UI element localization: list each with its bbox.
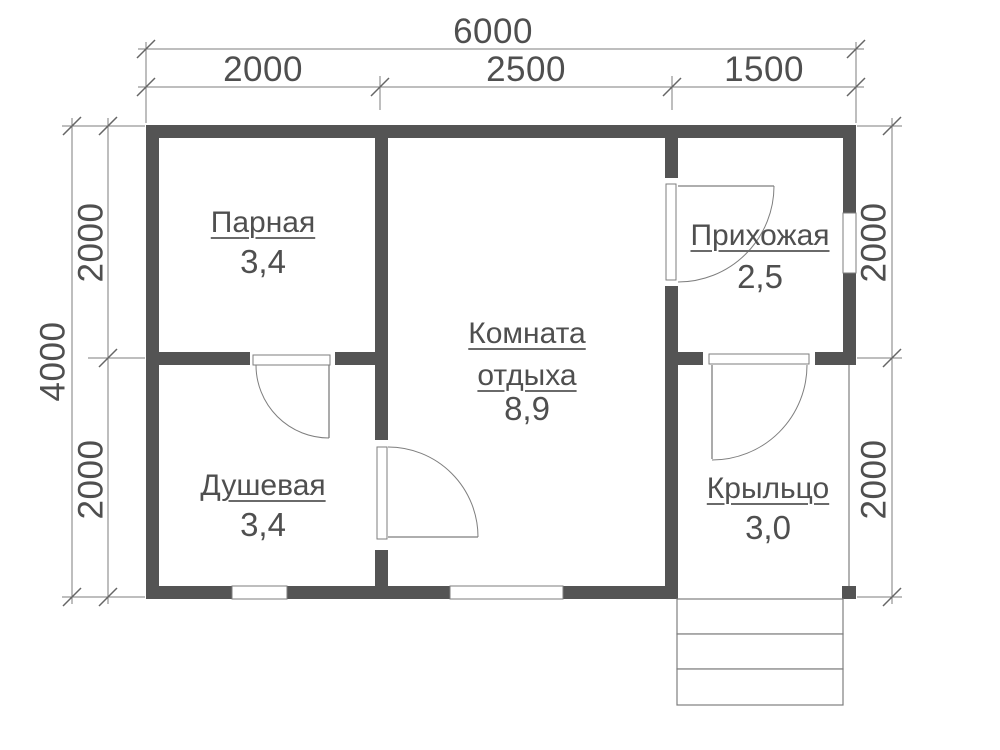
door-panel-shower	[377, 447, 387, 539]
wall-top	[146, 125, 856, 138]
dim-left-segment-1: 2000	[74, 163, 109, 323]
room-label-hallway: Прихожая	[660, 221, 860, 251]
dim-top-segment-3: 1500	[684, 52, 844, 87]
wall-inner-vertical2-upper	[665, 138, 678, 178]
room-label-shower: Душевая	[163, 471, 363, 501]
wall-inner-horizontal1-right	[335, 352, 375, 365]
wall-bottom-seg3	[563, 586, 678, 599]
room-area-hallway: 2,5	[660, 260, 860, 293]
dim-top-total: 6000	[413, 14, 573, 49]
door-arc-porch	[712, 365, 807, 460]
dim-left-total: 4000	[36, 282, 71, 442]
wall-inner-vertical1-upper	[375, 138, 388, 440]
door-panel-steamroom	[253, 355, 330, 365]
door-panel-porch	[709, 354, 809, 364]
wall-bottom-seg2	[287, 586, 450, 599]
wall-inner-horizontal2-right	[815, 352, 856, 365]
window-restroom	[450, 586, 563, 599]
wall-right-upper	[843, 125, 856, 213]
porch-step	[677, 599, 843, 634]
room-label-restroom: Комната отдыха	[437, 313, 617, 397]
room-label-porch: Крыльцо	[668, 474, 868, 504]
wall-inner-horizontal2-left	[678, 352, 703, 365]
room-area-steamroom: 3,4	[163, 245, 363, 278]
dim-right-segment-1: 2000	[857, 163, 892, 323]
porch-step	[677, 634, 843, 669]
wall-inner-vertical1-lower	[375, 550, 388, 586]
wall-left	[146, 125, 159, 599]
wall-inner-horizontal1-left	[159, 352, 250, 365]
room-area-shower: 3,4	[163, 508, 363, 541]
door-arc-steamroom	[256, 365, 329, 438]
dim-top-segment-2: 2500	[446, 52, 606, 87]
wall-bottom-seg1	[146, 586, 232, 599]
door-arc-shower	[388, 447, 478, 537]
floor-plan: 6000 2000 2500 1500 4000 2000 2000 2000 …	[0, 0, 1000, 750]
porch-corner-post	[842, 586, 856, 599]
room-label-steamroom: Парная	[163, 208, 363, 238]
dim-left-segment-2: 2000	[74, 400, 109, 560]
window-shower	[232, 586, 287, 599]
dim-top-segment-1: 2000	[183, 52, 343, 87]
porch-step	[677, 669, 843, 705]
porch-steps	[677, 599, 843, 705]
room-area-porch: 3,0	[668, 511, 868, 544]
room-area-restroom: 8,9	[437, 392, 617, 425]
